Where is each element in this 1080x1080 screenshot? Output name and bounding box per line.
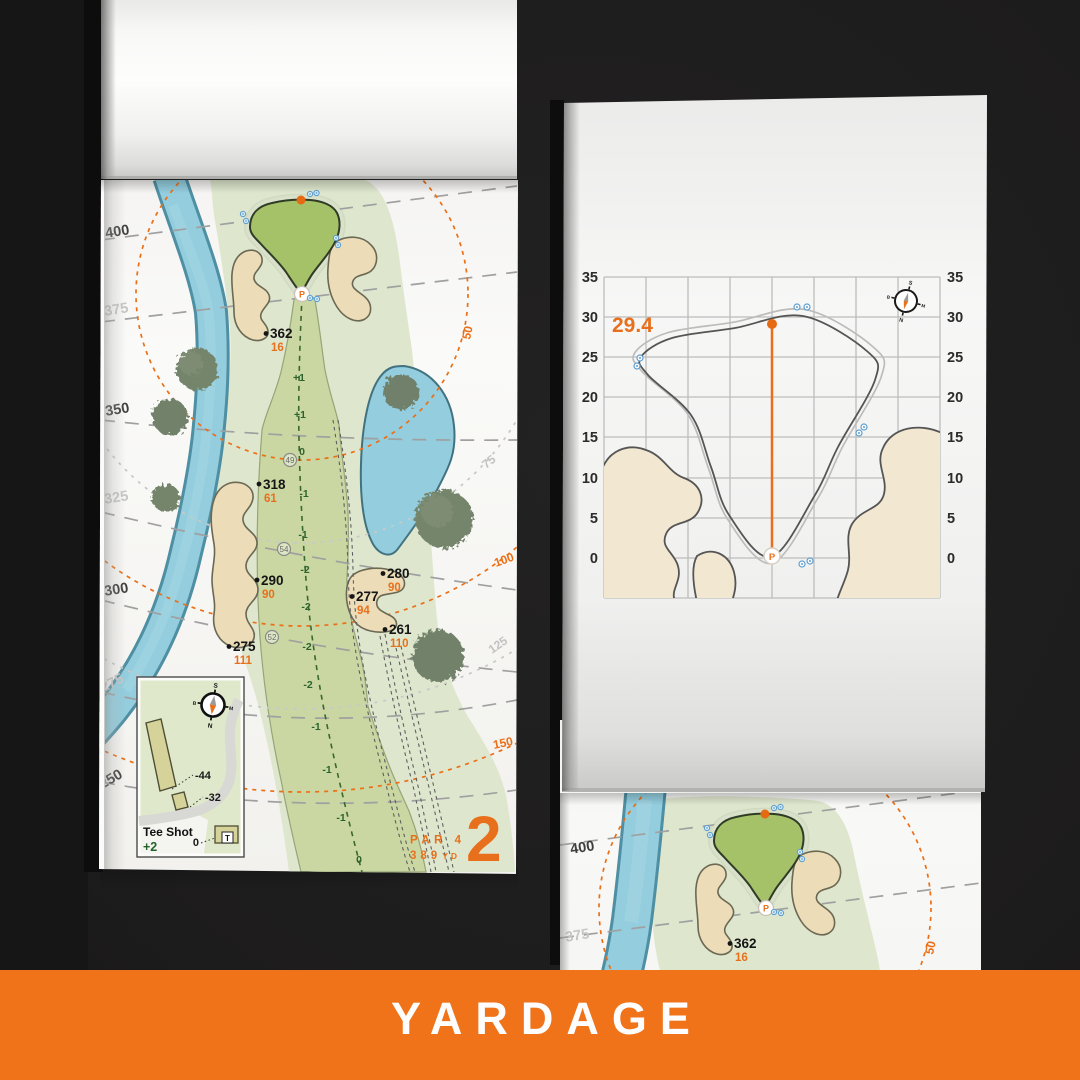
svg-text:49: 49 [286,456,295,465]
svg-text:5: 5 [590,511,598,527]
svg-text:YARDAGE: YARDAGE [391,993,703,1044]
svg-text:-1: -1 [336,812,345,824]
svg-text:+1: +1 [294,409,306,421]
svg-text:25: 25 [947,350,963,366]
svg-text:-1: -1 [311,721,320,733]
svg-text:M: M [229,706,234,713]
svg-text:15: 15 [947,430,963,446]
svg-text:35: 35 [947,270,963,286]
svg-text:52: 52 [268,633,277,642]
svg-text:2: 2 [466,803,502,875]
svg-text:-2: -2 [303,679,312,691]
svg-text:94: 94 [357,605,370,617]
svg-text:-1: -1 [298,529,307,541]
svg-text:15: 15 [582,430,598,446]
svg-text:0: 0 [299,446,305,458]
svg-text:16: 16 [735,952,748,964]
svg-text:362: 362 [734,936,757,951]
svg-text:-32: -32 [205,792,221,804]
svg-text:10: 10 [582,471,598,487]
svg-text:275: 275 [233,639,256,654]
svg-text:110: 110 [390,638,409,650]
svg-text:362: 362 [270,326,293,341]
svg-text:261: 261 [389,622,412,637]
svg-text:25: 25 [582,350,598,366]
svg-text:-2: -2 [302,641,311,653]
svg-text:290: 290 [261,573,284,588]
svg-text:318: 318 [263,477,286,492]
svg-text:389YD: 389YD [410,850,460,862]
svg-text:30: 30 [582,310,598,326]
svg-text:61: 61 [264,493,277,505]
svg-text:35: 35 [582,270,598,286]
svg-text:90: 90 [262,589,275,601]
svg-text:-2: -2 [300,564,309,576]
svg-text:+1: +1 [293,372,305,384]
svg-text:20: 20 [582,390,598,406]
svg-text:T: T [225,834,230,843]
svg-text:54: 54 [280,545,289,554]
svg-text:20: 20 [947,390,963,406]
svg-text:0: 0 [356,854,362,866]
svg-text:PAR 4: PAR 4 [410,835,466,847]
svg-text:0: 0 [590,551,598,567]
svg-text:29.4: 29.4 [612,314,653,337]
svg-text:Tee Shot: Tee Shot [143,825,193,839]
svg-text:P: P [299,290,305,300]
svg-text:5: 5 [947,511,955,527]
svg-text:280: 280 [387,566,410,581]
svg-text:-44: -44 [195,770,212,782]
svg-text:16: 16 [271,342,284,354]
svg-text:0: 0 [193,837,199,849]
svg-text:+2: +2 [143,840,157,854]
svg-text:10: 10 [947,471,963,487]
svg-text:-1: -1 [322,764,331,776]
svg-text:P: P [769,552,776,563]
svg-text:30: 30 [947,310,963,326]
svg-text:0: 0 [947,551,955,567]
svg-text:111: 111 [234,655,253,667]
svg-text:-1: -1 [299,488,308,500]
svg-text:90: 90 [388,582,401,594]
svg-text:-2: -2 [301,601,310,613]
svg-text:277: 277 [356,589,379,604]
